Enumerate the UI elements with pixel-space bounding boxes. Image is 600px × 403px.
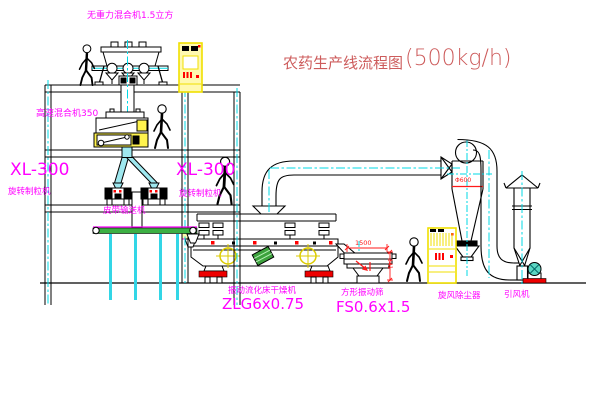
label-screen-name: 方形振动筛: [341, 289, 384, 298]
highspeed-mixer: [94, 109, 148, 147]
page-title: 农药生产线流程图 (500kg/h): [283, 46, 511, 73]
label-screen-model: FS0.6x1.5: [336, 300, 410, 315]
title-text: 农药生产线流程图: [283, 46, 403, 73]
label-dryer-model: ZLG6x0.75: [222, 297, 304, 312]
granulator-left: [105, 183, 131, 205]
fluidbed-dryer: [182, 214, 356, 283]
dim-screen-height: 341: [386, 258, 392, 269]
control-cabinet-top: [179, 43, 202, 92]
label-cyclone: 旋风除尘器: [438, 292, 481, 301]
dim-screen-length: 1500: [355, 240, 372, 247]
flow-diagram: 农药生产线流程图 (500kg/h) 无重力混合机1.5立方 高速混合机350 …: [0, 0, 600, 403]
title-capacity: (500kg/h): [405, 46, 511, 71]
label-belt-conveyor: 皮带输送机: [103, 207, 146, 216]
dim-cyclone-diameter: Φ600: [455, 178, 471, 184]
person-figure-floor2: [154, 105, 170, 148]
label-granulator-left-name: 旋转制粒机: [8, 188, 51, 197]
control-cabinet-right: [428, 228, 456, 283]
person-figure-roof: [79, 45, 94, 85]
label-highspeed-mixer: 高速混合机350: [36, 110, 98, 119]
label-granulator-left-model: XL-300: [10, 162, 69, 179]
granulator-right: [141, 183, 167, 205]
y-chute: [115, 147, 158, 183]
label-granulator-right-name: 旋转制粒机: [179, 190, 222, 199]
label-fan: 引风机: [504, 291, 530, 300]
label-gravity-mixer: 无重力混合机1.5立方: [87, 12, 173, 21]
label-granulator-right-model: XL-300: [176, 162, 235, 179]
exhaust-pipe: [253, 157, 460, 214]
person-figure-ground: [406, 238, 422, 281]
